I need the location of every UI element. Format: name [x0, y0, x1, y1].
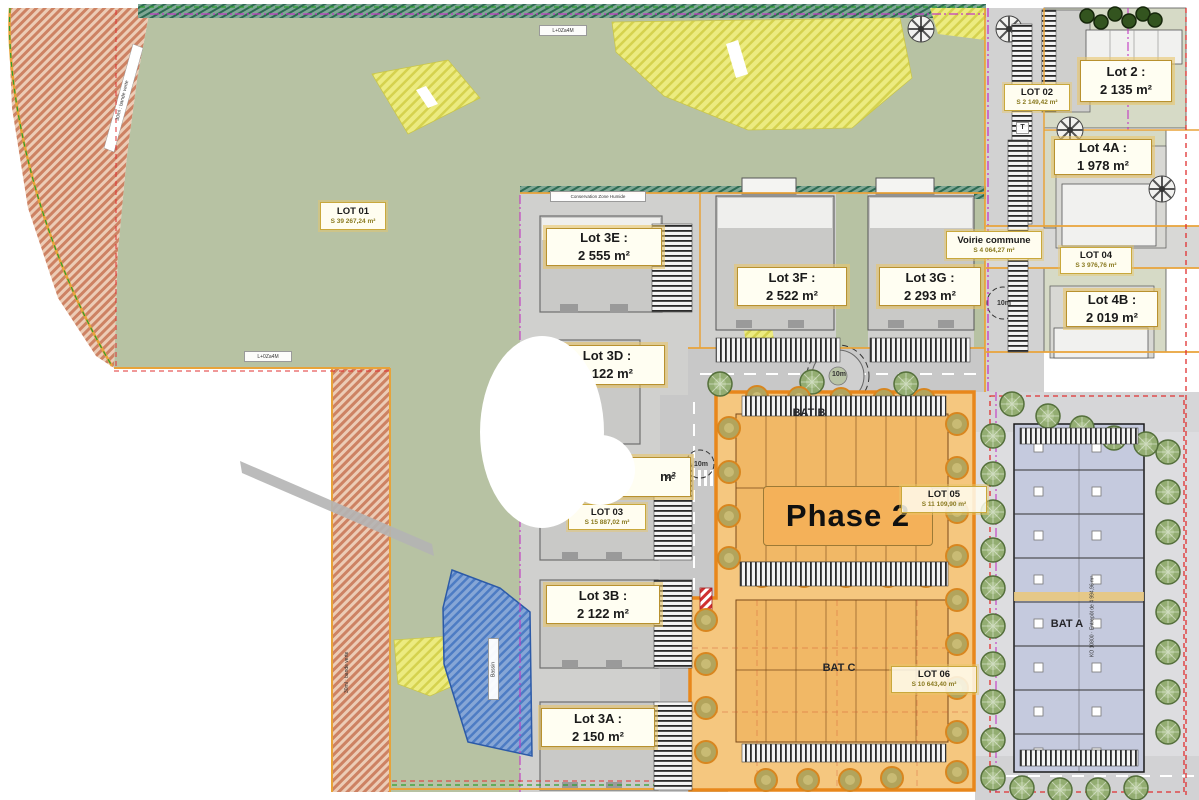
- tree-icon: [718, 505, 740, 527]
- lot3f-title: Lot 3F :: [769, 269, 816, 287]
- boundary-marker-mid: L+0Za4M: [244, 351, 292, 362]
- bat-b-text: BAT B: [793, 407, 826, 419]
- lot05-label: LOT 05 S 11 109,90 m²: [901, 486, 987, 513]
- lot03-area: S 15 887,02 m²: [585, 519, 630, 526]
- tree-icon: [981, 538, 1005, 562]
- tree-icon: [894, 372, 918, 396]
- lot02-title: LOT 02: [1021, 88, 1053, 99]
- tree-icon: [718, 417, 740, 439]
- lot04-area: S 3 976,76 m²: [1075, 262, 1116, 269]
- lot3e-title: Lot 3E :: [580, 229, 628, 247]
- lot3g-area: 2 293 m²: [904, 287, 956, 305]
- white-redaction-blob: [565, 435, 635, 505]
- pond-text: Bassin: [490, 662, 498, 677]
- conservation-text: Conservation Zone Humide: [571, 193, 626, 200]
- lot4a-area: 1 978 m²: [1077, 157, 1129, 175]
- parking-strip: [870, 338, 970, 362]
- lot3b-title: Lot 3B :: [579, 587, 627, 605]
- boundary-marker-top: L+0Za4M: [539, 25, 587, 36]
- lot3f-area: 2 522 m²: [766, 287, 818, 305]
- tree-icon: [1036, 404, 1060, 428]
- tree-icon: [981, 766, 1005, 790]
- parking-strip: [740, 562, 948, 586]
- lot3a-label: Lot 3A : 2 150 m²: [541, 708, 655, 747]
- lot3f-label: Lot 3F : 2 522 m²: [737, 267, 847, 306]
- green-band-label-bottom: 30ml : bande verte: [341, 616, 353, 728]
- tree-icon: [946, 721, 968, 743]
- tree-icon: [1094, 15, 1108, 29]
- tree-icon: [1156, 480, 1180, 504]
- lot4a-label: Lot 4A : 1 978 m²: [1054, 139, 1152, 175]
- lot04-title: LOT 04: [1080, 251, 1112, 262]
- lot05-title: LOT 05: [928, 490, 960, 501]
- dim-10m-text: 10m: [694, 461, 708, 468]
- lot02-label: LOT 02 S 2 149,42 m²: [1004, 84, 1070, 111]
- lot3a-area: 2 150 m²: [572, 728, 624, 746]
- tree-icon: [695, 653, 717, 675]
- lot06-area: S 10 643,40 m²: [912, 681, 957, 688]
- tree-icon: [1156, 560, 1180, 584]
- lot01-area: S 39 267,24 m²: [331, 218, 376, 225]
- site-plan: LOT 01 S 39 267,24 m² Lot 3E : 2 555 m² …: [0, 0, 1199, 800]
- tree-icon: [946, 761, 968, 783]
- pc-marker: PC: [662, 473, 680, 483]
- tree-icon: [1156, 600, 1180, 624]
- voirie-area: S 4 064,27 m²: [973, 247, 1014, 254]
- tree-icon: [1149, 176, 1175, 202]
- pond-label: Bassin: [488, 638, 499, 700]
- tree-icon: [755, 769, 777, 791]
- voirie-commune-label: Voirie commune S 4 064,27 m²: [946, 231, 1042, 259]
- tree-icon: [1108, 7, 1122, 21]
- lot2-title: Lot 2 :: [1107, 63, 1146, 81]
- boundary-marker-mid-text: L+0Za4M: [257, 353, 278, 361]
- tree-icon: [1048, 778, 1072, 800]
- parking-strip: [742, 744, 946, 762]
- tree-icon: [946, 589, 968, 611]
- parking-strip: [1020, 750, 1138, 766]
- tree-icon: [946, 457, 968, 479]
- lot3b-area: 2 122 m²: [577, 605, 629, 623]
- bat-a-building: [1014, 424, 1144, 772]
- parking-strip: [654, 702, 692, 790]
- tree-icon: [839, 769, 861, 791]
- tree-icon: [1156, 440, 1180, 464]
- lot3d-title: Lot 3D :: [583, 347, 631, 365]
- lot3g-title: Lot 3G :: [905, 269, 954, 287]
- lot2-label: Lot 2 : 2 135 m²: [1080, 60, 1172, 102]
- tree-icon: [981, 462, 1005, 486]
- dim-10m-text: 10m: [997, 300, 1011, 307]
- tree-icon: [1122, 14, 1136, 28]
- lot4a-title: Lot 4A :: [1079, 139, 1127, 157]
- bat-a-side-text: KO 10800 · Entrepôt de 4 994,96 m²: [1090, 577, 1096, 658]
- tree-icon: [1156, 680, 1180, 704]
- lot3g-label: Lot 3G : 2 293 m²: [879, 267, 981, 306]
- tree-icon: [1000, 392, 1024, 416]
- tree-icon: [1156, 640, 1180, 664]
- tree-icon: [1080, 9, 1094, 23]
- tree-icon: [1148, 13, 1162, 27]
- conservation-strip-label: Conservation Zone Humide: [550, 191, 646, 202]
- green-band-bottom-text: 30ml : bande verte: [343, 651, 351, 692]
- boundary-marker-top-text: L+0Za4M: [552, 27, 573, 35]
- bat-a-text: BAT A: [1051, 618, 1083, 630]
- lot3e-area: 2 555 m²: [578, 247, 630, 265]
- tree-icon: [1086, 778, 1110, 800]
- tree-icon: [718, 461, 740, 483]
- tree-icon: [946, 633, 968, 655]
- dim-10m-road: 10m: [688, 458, 714, 470]
- bat-a-label: BAT A: [1044, 618, 1090, 630]
- tree-icon: [981, 728, 1005, 752]
- tree-icon: [1156, 520, 1180, 544]
- lot06-label: LOT 06 S 10 643,40 m²: [891, 666, 977, 693]
- tree-icon: [946, 413, 968, 435]
- tree-icon: [1124, 776, 1148, 800]
- bat-c-text: BAT C: [823, 662, 856, 674]
- tree-icon: [908, 16, 934, 42]
- phase2-zone: [690, 392, 974, 790]
- lot04-label: LOT 04 S 3 976,76 m²: [1060, 247, 1132, 274]
- lot03-title: LOT 03: [591, 508, 623, 519]
- t-marker: T: [1016, 122, 1029, 134]
- bat-b-label: BAT B: [786, 407, 832, 419]
- tree-icon: [981, 424, 1005, 448]
- lot01-title: LOT 01: [337, 207, 369, 218]
- tree-icon: [718, 547, 740, 569]
- tree-icon: [708, 372, 732, 396]
- tree-icon: [1010, 776, 1034, 800]
- lot4b-label: Lot 4B : 2 019 m²: [1066, 291, 1158, 327]
- bat-c-label: BAT C: [816, 662, 862, 674]
- tree-icon: [981, 576, 1005, 600]
- pc-marker-text: PC: [667, 475, 675, 481]
- lot3e-label: Lot 3E : 2 555 m²: [546, 228, 662, 266]
- lot06-title: LOT 06: [918, 670, 950, 681]
- tree-icon: [881, 767, 903, 789]
- dim-10m-voirie: 10m: [991, 297, 1017, 309]
- parking-strip: [716, 338, 840, 362]
- lot4b-title: Lot 4B :: [1088, 291, 1136, 309]
- dim-10m-roundabout: 10m: [826, 368, 852, 380]
- tree-icon: [797, 769, 819, 791]
- lot05-area: S 11 109,90 m²: [922, 501, 966, 508]
- lot3a-title: Lot 3A :: [574, 710, 622, 728]
- tree-icon: [1156, 720, 1180, 744]
- lot4b-area: 2 019 m²: [1086, 309, 1138, 327]
- dim-10m-text: 10m: [832, 371, 846, 378]
- tree-icon: [695, 609, 717, 631]
- tree-icon: [981, 652, 1005, 676]
- tree-icon: [946, 545, 968, 567]
- phase2-text: Phase 2: [786, 498, 910, 534]
- lot2-area: 2 135 m²: [1100, 81, 1152, 99]
- lot3b-label: Lot 3B : 2 122 m²: [546, 585, 660, 624]
- t-marker-text: T: [1020, 122, 1024, 133]
- tree-icon: [695, 741, 717, 763]
- voirie-title: Voirie commune: [957, 236, 1030, 247]
- lot01-label: LOT 01 S 39 267,24 m²: [320, 202, 386, 230]
- parking-strip: [1020, 428, 1138, 444]
- tree-icon: [981, 690, 1005, 714]
- bat-a-side-label: KO 10800 · Entrepôt de 4 994,96 m²: [1086, 552, 1099, 682]
- lot02-area: S 2 149,42 m²: [1016, 99, 1057, 106]
- tree-icon: [695, 697, 717, 719]
- parking-strip: [742, 396, 946, 416]
- tree-icon: [981, 614, 1005, 638]
